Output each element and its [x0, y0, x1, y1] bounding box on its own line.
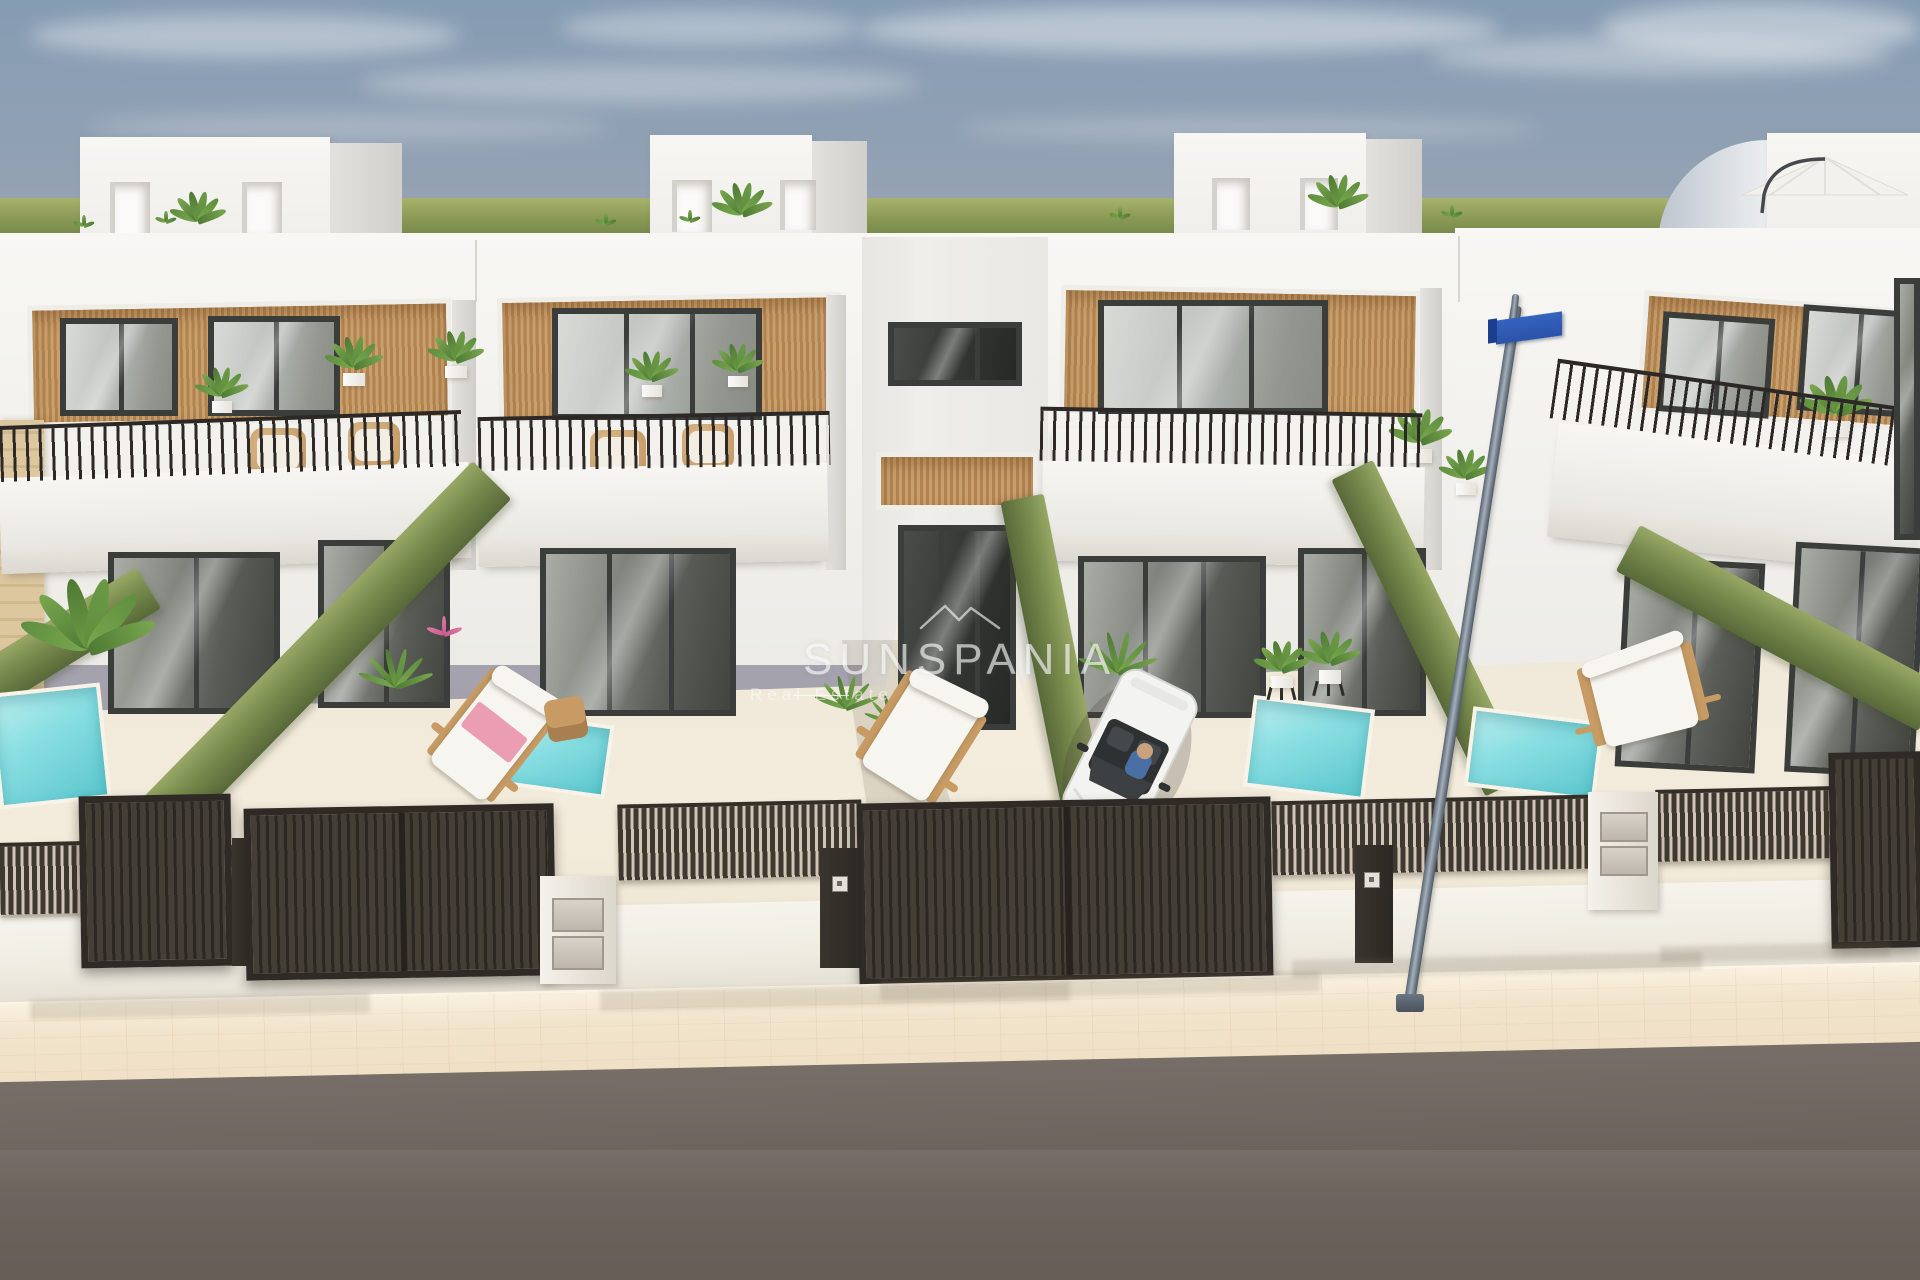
- street-road-fill: [0, 1150, 1920, 1280]
- scene-layer: [0, 0, 1920, 1280]
- street-sign-edge: [1488, 318, 1497, 343]
- gate-post: [820, 848, 862, 968]
- cloud: [30, 14, 460, 58]
- utility-meter-box: [1600, 846, 1648, 876]
- driveway-gate: [244, 803, 557, 980]
- balcony-railing: [478, 411, 831, 471]
- render-3d-townhouses: SUNSPANIA Real Estate: [0, 0, 1920, 1280]
- plant-stand-leg: [1313, 681, 1319, 696]
- window-glass-door: [540, 548, 736, 716]
- cloud: [560, 10, 860, 46]
- garden-plant-fern: [822, 682, 870, 730]
- terrace-potted-plant: [329, 348, 379, 398]
- fence-slat-panel: [1655, 786, 1832, 862]
- roof-tower-opening: [1212, 178, 1250, 230]
- utility-meter-box: [552, 898, 604, 932]
- planter-pot: [343, 373, 365, 386]
- garden-plant-fern: [368, 656, 424, 712]
- window-reflection: [894, 328, 1016, 380]
- cloud: [360, 64, 920, 104]
- private-pool: [0, 682, 112, 809]
- gate-keypad: [832, 876, 848, 892]
- window-reflection: [1104, 306, 1322, 408]
- planter-pot: [1319, 670, 1342, 684]
- facade-seam: [475, 240, 477, 302]
- utility-meter-box: [1600, 812, 1648, 842]
- balcony-railing: [1040, 407, 1423, 468]
- roof-parasol: [1740, 155, 1910, 225]
- window-glass-door: [1894, 278, 1920, 540]
- roof-tower-side: [1366, 139, 1422, 241]
- window-reflection: [1900, 284, 1914, 534]
- window: [1098, 300, 1328, 414]
- private-pool: [1243, 695, 1375, 801]
- terrace-potted-plant: [716, 354, 760, 398]
- driveway-gate: [1828, 751, 1920, 949]
- planter-pot: [642, 385, 662, 397]
- planter-pot: [1271, 676, 1292, 688]
- wooden-side-table: [543, 695, 590, 743]
- garden-plant-pink: [429, 618, 459, 648]
- planter-pot: [212, 401, 232, 413]
- roofline-plant-tuft: [1441, 204, 1463, 226]
- planter-pot: [445, 366, 466, 378]
- roofline-plant-tuft: [73, 214, 95, 236]
- plant-stand-leg: [1339, 681, 1345, 696]
- utility-meter-box: [552, 936, 604, 970]
- cloud: [1600, 2, 1920, 56]
- window-reflection: [66, 324, 172, 410]
- roof-tower-opening: [242, 182, 282, 234]
- terrace-potted-plant: [629, 362, 675, 408]
- roof-terrace-plant: [716, 186, 768, 238]
- terrace-potted-plant: [432, 342, 480, 390]
- planter-pot: [728, 376, 747, 387]
- cloud: [860, 6, 1500, 54]
- driveway-gate: [79, 794, 234, 969]
- fence-slat-panel: [0, 841, 83, 915]
- garden-plant-stand: [1258, 652, 1306, 700]
- window: [60, 318, 178, 416]
- roofline-plant-tuft: [679, 209, 701, 231]
- roofline-plant-tuft: [1109, 206, 1131, 228]
- gate-post: [232, 838, 250, 966]
- window-reflection: [546, 554, 730, 710]
- roof-tower-opening: [110, 182, 150, 240]
- gate-post: [1355, 845, 1393, 963]
- roof-tower-opening: [780, 180, 816, 230]
- street-lamp-base: [1396, 994, 1424, 1012]
- planter-pot: [1456, 483, 1476, 495]
- roofline-plant-tuft: [595, 212, 617, 234]
- facade-seam: [1458, 236, 1460, 302]
- gate-keypad: [1364, 872, 1380, 888]
- roof-tower-side: [812, 141, 867, 241]
- garden-plant-palm: [31, 585, 146, 700]
- window: [888, 322, 1022, 386]
- garden-plant-stand: [1304, 644, 1356, 696]
- roofline-plant-tuft: [155, 210, 177, 232]
- driveway-gate: [856, 796, 1273, 985]
- roof-terrace-plant: [1312, 178, 1364, 230]
